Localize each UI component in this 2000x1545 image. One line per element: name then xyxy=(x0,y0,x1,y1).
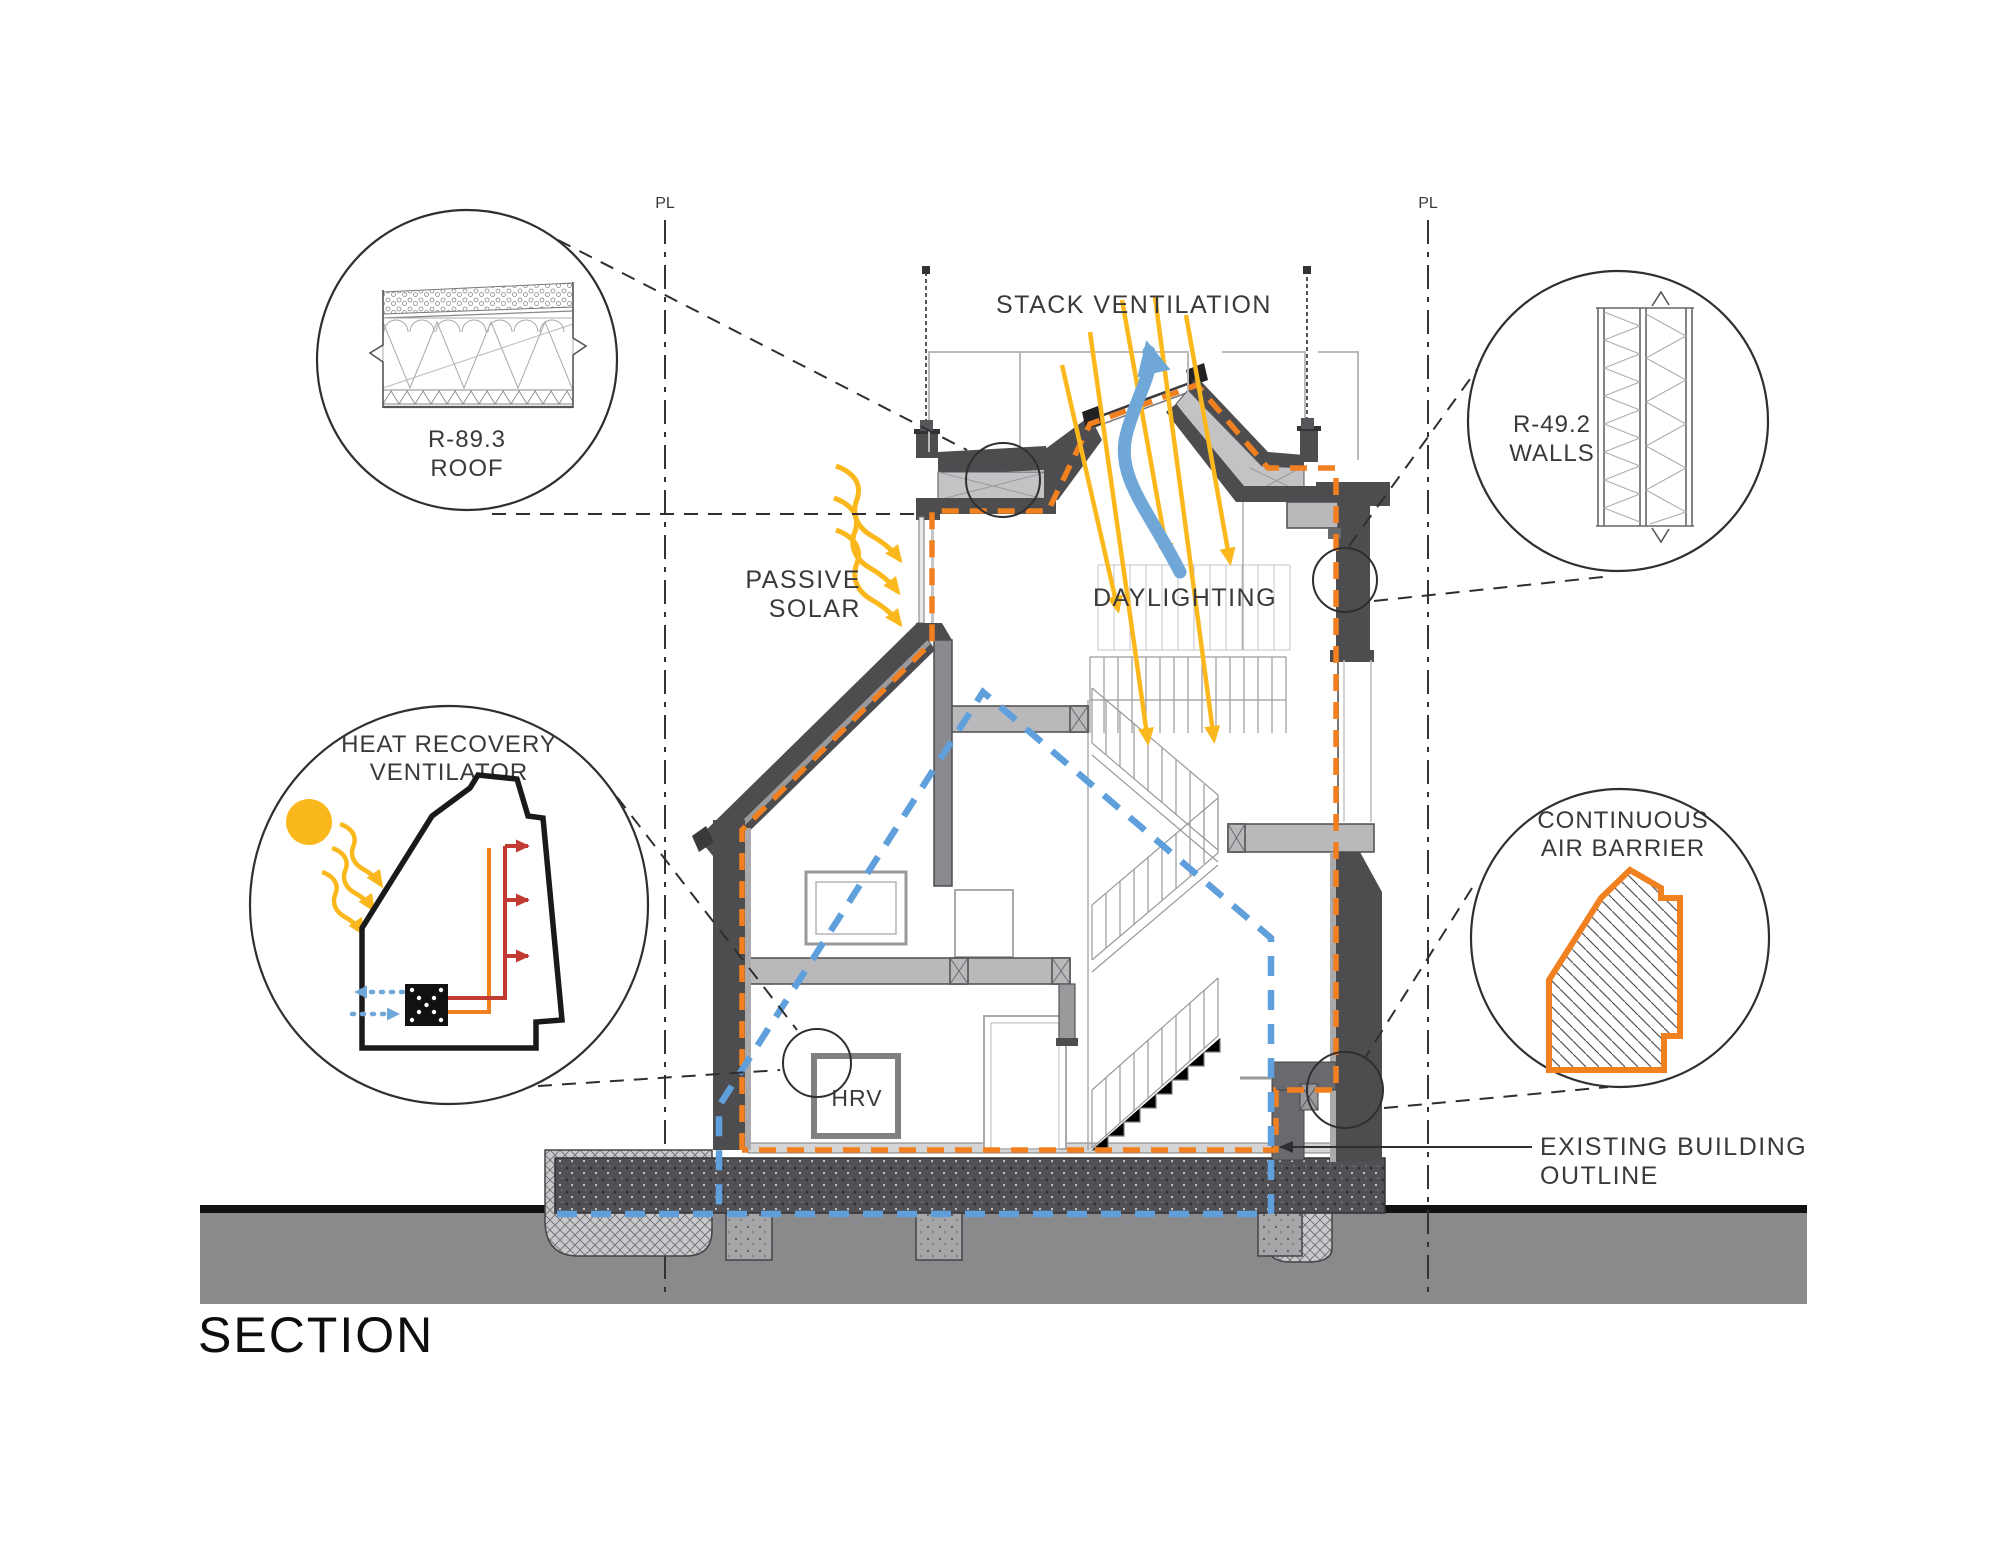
daylight-ray xyxy=(1155,297,1214,740)
passive-solar-label-2: SOLAR xyxy=(769,595,861,623)
post xyxy=(1059,984,1075,1040)
callout-roof: R-89.3 ROOF xyxy=(317,210,617,510)
post-base xyxy=(1056,1038,1078,1046)
footing xyxy=(1258,1212,1302,1256)
callout-ab-title-1: CONTINUOUS xyxy=(1537,807,1708,834)
callout-roof-value: R-89.3 xyxy=(428,426,506,453)
window-left-glazing xyxy=(919,517,924,623)
clerestory-sill-wedge xyxy=(1044,416,1102,500)
post-cap xyxy=(1303,266,1311,274)
floor-band-level2-left xyxy=(745,958,1070,984)
existing-building-label-1: EXISTING BUILDING xyxy=(1540,1133,1807,1161)
callout-walls-label: WALLS xyxy=(1509,440,1594,467)
knee-wall xyxy=(934,640,952,886)
callout-walls: R-49.2 WALLS xyxy=(1468,271,1768,571)
parapet-right xyxy=(1300,430,1318,462)
solar-wave-arrow xyxy=(836,466,900,560)
section-drawing: PL PL xyxy=(0,0,2000,1545)
leader-walls-2 xyxy=(1349,368,1478,546)
callout-hrv: HEAT RECOVERY VENTILATOR xyxy=(250,706,648,1104)
leader-walls-1 xyxy=(1374,576,1612,601)
existing-building-label-2: OUTLINE xyxy=(1540,1162,1659,1190)
post-cap xyxy=(922,266,930,274)
post-collar xyxy=(1301,418,1314,429)
page-title: SECTION xyxy=(198,1307,434,1363)
callout-air-barrier: CONTINUOUS AIR BARRIER xyxy=(1471,789,1769,1087)
door-lower xyxy=(984,1016,1066,1149)
wall-right-lower xyxy=(1336,852,1382,1162)
callout-walls-value: R-49.2 xyxy=(1513,411,1591,438)
ground-band xyxy=(200,1213,1807,1304)
stack-ventilation-label: STACK VENTILATION xyxy=(996,291,1272,319)
floor-band-level2-right xyxy=(1228,824,1374,852)
stair-flight-lower xyxy=(1092,978,1220,1150)
callout-ab-title-2: AIR BARRIER xyxy=(1541,835,1705,862)
architectural-section-page: PL PL xyxy=(0,0,2000,1545)
wall-left-inner-face xyxy=(745,828,751,1150)
passive-solar-label-1: PASSIVE xyxy=(745,566,861,594)
parapet-left xyxy=(916,433,938,458)
structure-right xyxy=(1166,376,1390,1162)
bulkhead xyxy=(1287,502,1338,528)
floor-slab xyxy=(555,1158,1385,1213)
floor-band-level3 xyxy=(950,706,1088,732)
callout-hrv-title-1: HEAT RECOVERY xyxy=(341,731,557,758)
footing xyxy=(916,1212,962,1260)
leader-air-barrier-2 xyxy=(1384,1087,1608,1108)
leader-roof-1 xyxy=(558,240,967,450)
property-line-label-left: PL xyxy=(655,195,675,212)
detail-markers xyxy=(783,443,1383,1128)
door-upper xyxy=(955,890,1013,957)
daylight-ray xyxy=(1062,365,1118,610)
footing xyxy=(726,1212,772,1260)
daylighting-label: DAYLIGHTING xyxy=(1093,584,1277,612)
stair-flight-upper xyxy=(1092,688,1218,862)
sun-icon xyxy=(286,799,332,845)
ground xyxy=(200,1205,1807,1304)
guardrail-panel-far-right xyxy=(1318,352,1358,460)
stair-flight-middle xyxy=(1092,798,1218,972)
property-line-label-right: PL xyxy=(1418,195,1438,212)
callout-roof-label: ROOF xyxy=(430,455,503,482)
